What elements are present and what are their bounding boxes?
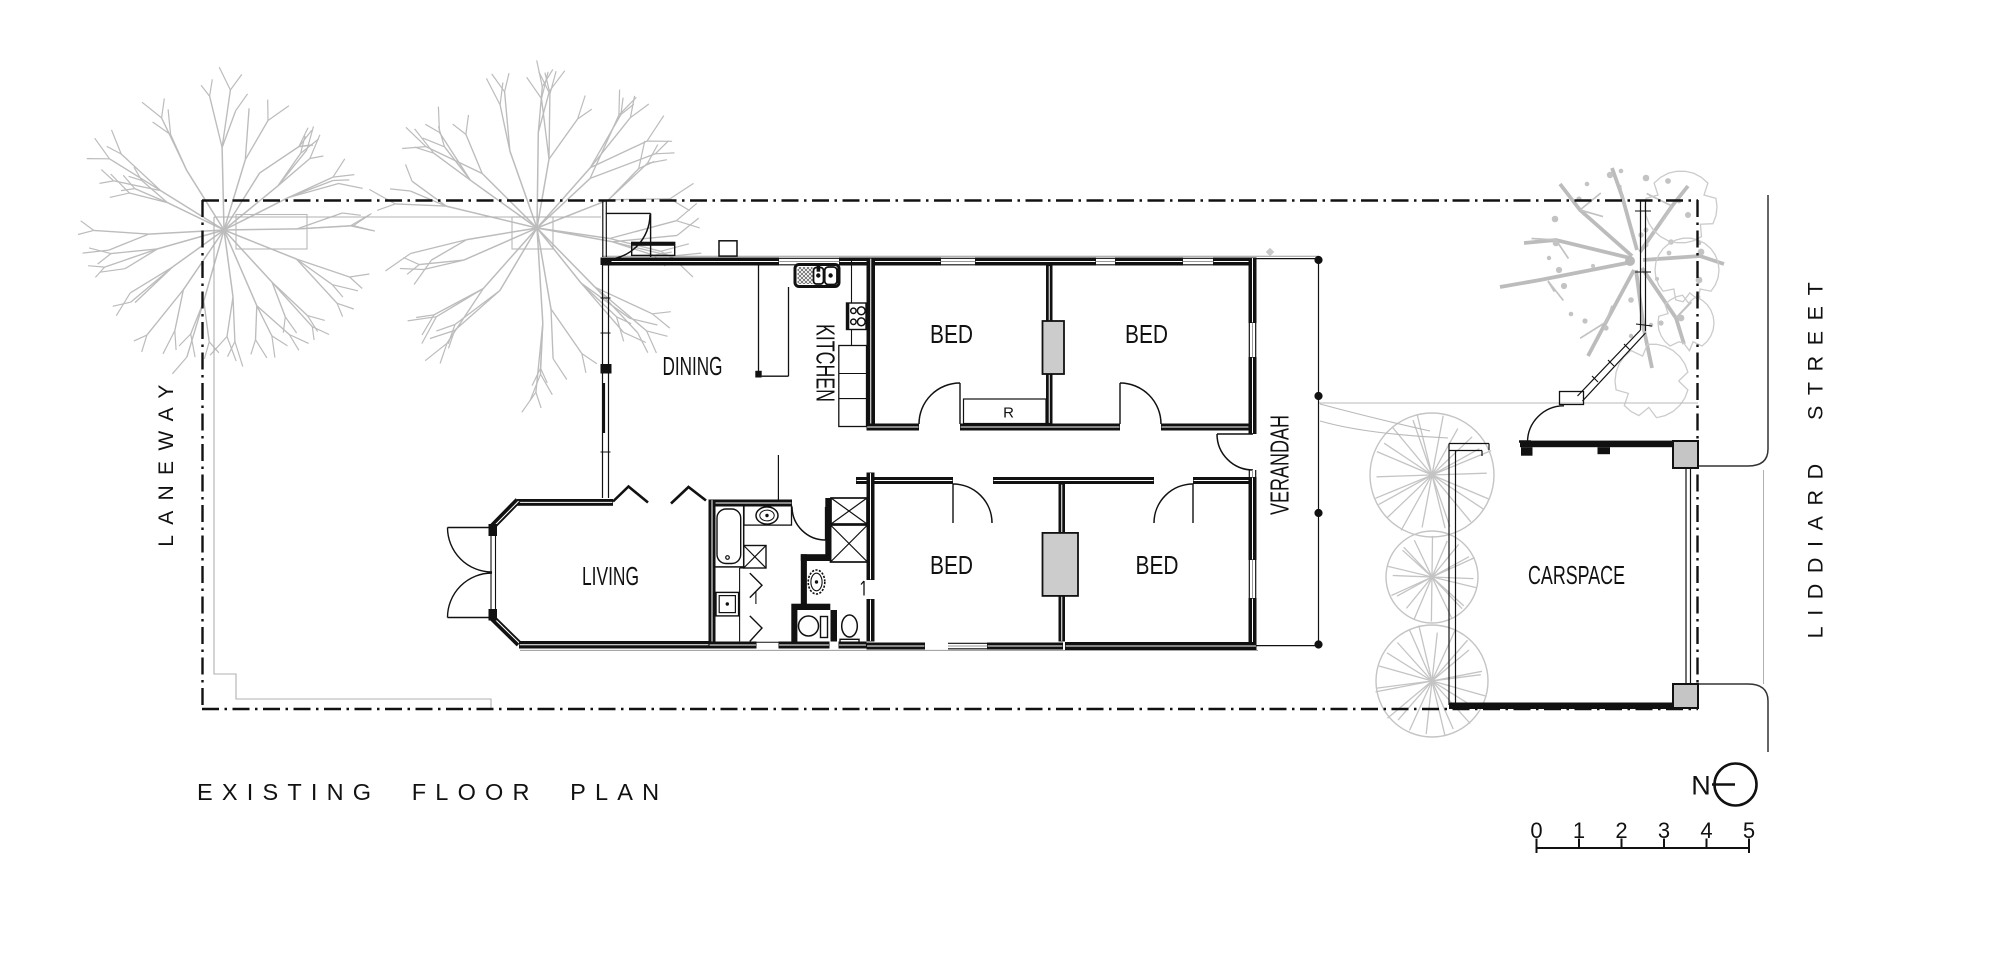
svg-text:1: 1 bbox=[1573, 818, 1585, 843]
svg-text:CARSPACE: CARSPACE bbox=[1528, 560, 1625, 590]
svg-text:LANEWAY: LANEWAY bbox=[155, 374, 178, 546]
svg-text:DINING: DINING bbox=[663, 351, 723, 381]
svg-text:5: 5 bbox=[1743, 818, 1755, 843]
svg-text:3: 3 bbox=[1658, 818, 1670, 843]
svg-text:BED: BED bbox=[930, 550, 973, 580]
svg-text:0: 0 bbox=[1530, 818, 1542, 843]
svg-text:R: R bbox=[1003, 405, 1014, 422]
svg-text:BED: BED bbox=[1136, 550, 1179, 580]
svg-text:BED: BED bbox=[1125, 319, 1168, 349]
svg-text:N: N bbox=[1691, 771, 1711, 801]
svg-text:VERANDAH: VERANDAH bbox=[1265, 415, 1295, 515]
svg-text:4: 4 bbox=[1700, 818, 1712, 843]
svg-text:LIDDIARD STREET: LIDDIARD STREET bbox=[1804, 272, 1828, 639]
svg-text:2: 2 bbox=[1615, 818, 1627, 843]
svg-text:KITCHEN: KITCHEN bbox=[811, 324, 841, 402]
svg-text:EXISTING FLOOR PLAN: EXISTING FLOOR PLAN bbox=[197, 779, 668, 805]
svg-text:BED: BED bbox=[930, 319, 973, 349]
svg-text:LIVING: LIVING bbox=[582, 561, 639, 591]
